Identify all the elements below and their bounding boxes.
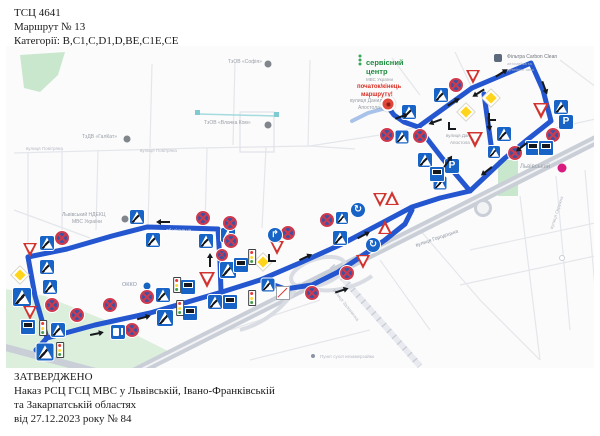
bus-stop-sign-icon [526,141,540,155]
map-label: Апостола [358,105,380,111]
map-label: Львівський НДЕКЦ [62,212,105,218]
map-label: вулиця Повітряна [140,148,177,153]
pedestrian-crossing-sign-icon [40,236,54,250]
pedestrian-crossing-sign-icon [497,127,511,141]
no-stopping-sign-icon [224,234,238,248]
poi-marker [359,63,362,66]
route-start-end-marker [383,99,394,110]
regions-line: та Закарпатській областях [14,398,275,412]
approval-block: ЗАТВЕРДЖЕНО Наказ РСЦ ГСЦ МВС у Львівськ… [14,370,275,426]
restriction-end-sign-icon [276,286,290,300]
poi-marker [558,164,567,173]
poi-marker [494,54,502,62]
no-stopping-sign-icon [449,78,463,92]
pedestrian-crossing-sign-icon [13,288,31,306]
no-stopping-sign-icon [546,128,560,142]
warning-sign-icon [378,220,392,234]
map-label: автомийка та [507,61,532,66]
pedestrian-crossing-sign-icon [157,310,173,326]
turn-corner-arrow [488,113,496,121]
pedestrian-crossing-sign-icon [208,295,222,309]
poi-marker [359,55,362,58]
no-stopping-sign-icon [380,128,394,142]
yield-sign-icon [466,70,480,84]
pedestrian-crossing-sign-icon [333,231,347,245]
poi-marker [265,61,272,68]
poi-marker [124,136,131,143]
traffic-light-sign-icon [173,277,181,293]
map-label: Зберігальна [166,228,191,233]
map-label: ТзОВ «Софія» [228,59,262,65]
pedestrian-crossing-sign-icon [43,280,57,294]
roundabout-sign-icon: ↻ [366,238,380,252]
bus-stop-sign-icon [183,306,197,320]
pedestrian-crossing-sign-icon [554,100,568,114]
map-label: ОККО [122,282,137,288]
no-stopping-sign-icon [340,266,354,280]
yield-sign-icon [199,272,215,288]
yield-sign-icon [356,255,370,269]
pedestrian-crossing-sign-icon [199,234,213,248]
yield-sign-icon [533,103,549,119]
no-stopping-sign-icon [125,323,139,337]
gas-station-sign-icon [111,325,125,339]
map-label: сервісний [366,58,404,67]
pedestrian-crossing-sign-icon [336,212,348,224]
route-number: Маршрут № 13 [14,20,178,34]
map-label: ТзОВ «Влачка Ком» [204,120,251,126]
map-label: Фільтра Carbon Clean [507,54,557,60]
map-label: вулиця Данила [350,98,385,104]
no-stopping-sign-icon [45,298,59,312]
traffic-light-sign-icon [248,290,256,306]
traffic-light-sign-icon [39,320,47,336]
map-label: початок/кінець [357,84,401,90]
traffic-light-sign-icon [56,342,64,358]
bus-stop-sign-icon [181,280,195,294]
map-label: МВС України [366,77,393,82]
pedestrian-crossing-sign-icon [262,279,275,292]
no-stopping-sign-icon [223,216,237,230]
pedestrian-crossing-sign-icon [418,153,432,167]
warning-sign-icon [385,191,399,205]
map-label: маршруту! [361,92,393,98]
no-stopping-sign-icon [103,298,117,312]
pedestrian-crossing-sign-icon [130,210,144,224]
map-label: МВС України [72,219,102,225]
map-label: центр [366,67,388,76]
pedestrian-crossing-sign-icon [396,131,409,144]
pedestrian-crossing-sign-icon [40,260,54,274]
map-canvas[interactable]: PP↱↻↻ТзОВ «Софія»ТзОВ «Влачка Ком»ТзДВ «… [6,46,594,368]
bus-stop-sign-icon [430,167,444,181]
yield-sign-icon [23,306,37,320]
no-stopping-sign-icon [320,213,334,227]
pedestrian-crossing-sign-icon [434,88,448,102]
no-stopping-sign-icon [216,249,228,261]
bus-stop-sign-icon [21,320,35,334]
bus-stop-sign-icon [234,258,248,272]
yield-sign-icon [467,132,483,148]
no-stopping-sign-icon [305,286,319,300]
pedestrian-crossing-sign-icon [156,288,170,302]
poi-marker [265,122,272,129]
turn-corner-arrow [268,254,276,262]
poi-marker [559,255,565,261]
traffic-light-sign-icon [176,300,184,316]
direction-arrow [160,221,170,223]
pedestrian-crossing-sign-icon [488,146,500,158]
turn-corner-arrow [448,122,456,130]
roundabout-sign-icon: ↻ [351,203,365,217]
map-label: вулиця Повітряна [26,146,63,151]
mandatory-turn-sign-icon: ↱ [268,228,282,242]
no-stopping-sign-icon [196,211,210,225]
map-label: Львівський [520,164,550,170]
no-stopping-sign-icon [140,290,154,304]
yield-sign-icon [23,243,37,257]
tsc-number: ТСЦ 4641 [14,6,178,20]
order-line: Наказ РСЦ ГСЦ МВС у Львівській, Івано-Фр… [14,384,275,398]
no-stopping-sign-icon [413,129,427,143]
no-stopping-sign-icon [281,226,295,240]
document-header: ТСЦ 4641 Маршрут № 13 Категорії: B,C1,C,… [14,6,178,48]
approved-title: ЗАТВЕРДЖЕНО [14,370,275,384]
pedestrian-crossing-sign-icon [37,344,54,361]
map-label: Пункт сухої незамерзайки [320,354,374,359]
poi-marker [311,354,315,358]
poi-marker [359,59,362,62]
poi-marker [122,216,129,223]
poi-marker [144,283,151,290]
order-date: від 27.12.2023 року № 84 [14,412,275,426]
map-label: детейлінг авто [507,67,534,72]
route-layer [6,46,594,368]
parking-sign-icon: P [559,115,573,129]
bus-stop-sign-icon [539,141,553,155]
no-stopping-sign-icon [70,308,84,322]
yield-sign-icon [270,241,284,255]
pedestrian-crossing-sign-icon [146,233,160,247]
direction-arrow [209,257,211,267]
pedestrian-crossing-sign-icon [51,323,65,337]
bus-stop-sign-icon [223,295,237,309]
traffic-light-sign-icon [248,249,256,265]
no-stopping-sign-icon [55,231,69,245]
map-label: ТзДВ «ГалКат» [82,134,117,140]
